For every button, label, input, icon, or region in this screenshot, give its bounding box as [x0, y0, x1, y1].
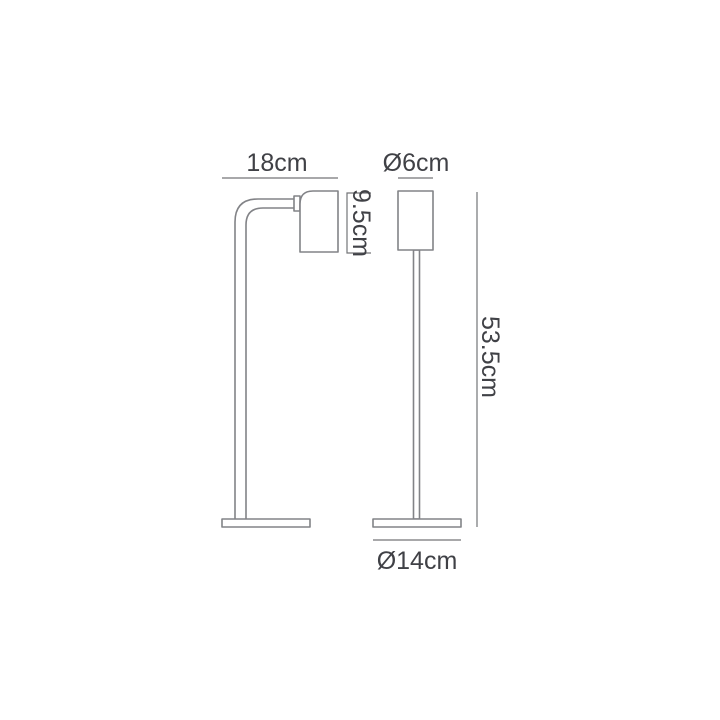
base-front — [373, 519, 461, 527]
shade-front — [398, 191, 433, 250]
arm-depth-label: 18cm — [246, 149, 307, 177]
dimension-shade-height: 9.5cm — [347, 189, 375, 257]
base-side — [222, 519, 310, 527]
arm-outer-line — [235, 199, 295, 519]
shade-side — [300, 191, 338, 252]
shade-connector — [294, 196, 300, 211]
dimension-arm-depth: 18cm — [222, 149, 338, 178]
total-height-label: 53.5cm — [476, 316, 504, 398]
lamp-front-view — [373, 191, 461, 527]
dimension-total-height: 53.5cm — [476, 192, 504, 527]
pole-front — [414, 250, 420, 519]
lamp-drawing: 18cm Ø6cm 9.5cm 53.5cm Ø14cm — [0, 0, 720, 720]
shade-diameter-label: Ø6cm — [383, 149, 450, 177]
lamp-side-view — [222, 191, 338, 527]
dimension-diagram: 18cm Ø6cm 9.5cm 53.5cm Ø14cm — [0, 0, 720, 720]
shade-height-label: 9.5cm — [347, 189, 375, 257]
dimension-base-diameter: Ø14cm — [373, 540, 461, 575]
arm-inner-line — [246, 208, 295, 519]
dimension-shade-diameter: Ø6cm — [383, 149, 450, 178]
base-diameter-label: Ø14cm — [377, 547, 458, 575]
